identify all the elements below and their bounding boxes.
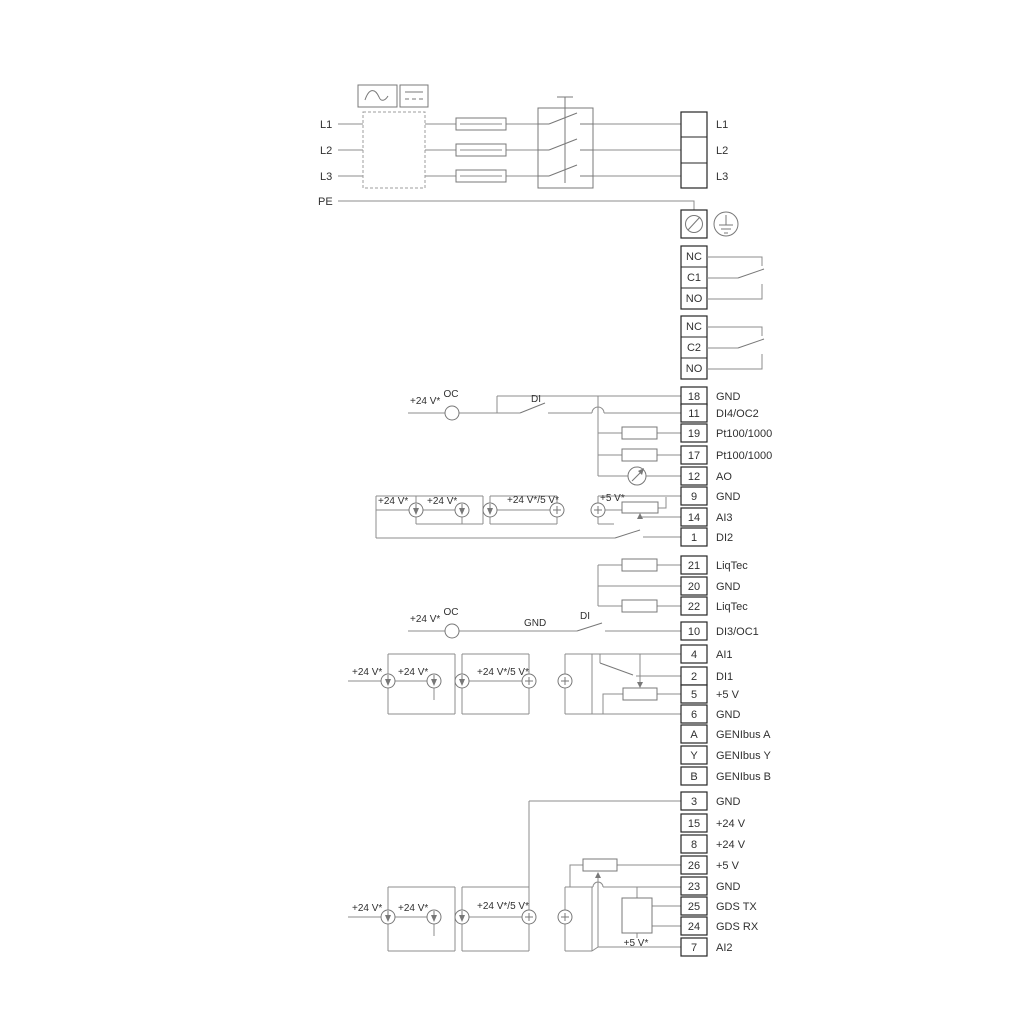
voltage-annotation: +24 V*/5 V* (477, 901, 529, 912)
liqtec-resistor-icon (622, 559, 657, 571)
voltage-annotation: +24 V* (378, 496, 408, 507)
voltage-annotation: +24 V*/5 V* (477, 667, 529, 678)
terminal-label: GND (716, 881, 741, 893)
terminal-row: 17Pt100/1000 (681, 446, 772, 464)
voltage-source-icon (558, 674, 572, 688)
terminal-label: AI3 (716, 512, 733, 524)
oc-annotation: OC (444, 389, 459, 400)
gnd-annotation: GND (524, 618, 546, 629)
di-switch-icon (615, 530, 640, 538)
terminal-row: 3GND (681, 792, 741, 810)
power-input-section: L1 L2 L3 PE L1 L2 L3 (318, 85, 738, 238)
wiring-diagram: L1 L2 L3 PE L1 L2 L3 (0, 0, 1024, 1024)
terminal-label: GENIbus Y (716, 750, 771, 762)
terminal-row: 6GND (681, 705, 741, 723)
liqtec-wiring (598, 559, 681, 612)
current-source-icon (455, 910, 469, 924)
terminal-number: 21 (688, 560, 700, 572)
terminal-number: Y (690, 750, 698, 762)
terminal-row: 14AI3 (681, 508, 733, 526)
terminal-label: GND (716, 491, 741, 503)
terminal-number: B (690, 771, 697, 783)
io-bottom-terminal-block: 3GND 15+24 V 8+24 V 26+5 V 23GND 25GDS T… (681, 792, 759, 956)
terminal-row: 18GND (681, 387, 741, 405)
current-source-icon (409, 503, 423, 517)
mains-terminal-block: L1 L2 L3 (681, 112, 728, 188)
voltage-annotation: +5 V* (600, 493, 625, 504)
terminal-label: GND (716, 391, 741, 403)
oc-annotation: OC (444, 607, 459, 618)
relay-2-wires (707, 327, 762, 369)
terminal-row: 15+24 V (681, 814, 746, 832)
potentiometer-icon (583, 859, 617, 871)
potentiometer-icon (622, 502, 658, 513)
terminal-label: Pt100/1000 (716, 428, 772, 440)
potentiometer-wiper-arrow (637, 682, 643, 688)
current-source-icon (381, 674, 395, 688)
terminal-label: DI3/OC1 (716, 626, 759, 638)
voltage-annotation: +24 V* (427, 496, 457, 507)
terminal-row: 12AO (681, 467, 732, 485)
terminal-label: LiqTec (716, 560, 748, 572)
terminal-row: 19Pt100/1000 (681, 424, 772, 442)
voltage-annotation: +24 V* (410, 396, 440, 407)
current-source-icon (381, 910, 395, 924)
voltage-annotation: +24 V* (398, 667, 428, 678)
terminal-row: 10DI3/OC1 (681, 622, 759, 640)
terminal-number: 10 (688, 626, 700, 638)
voltage-source-icon (522, 910, 536, 924)
terminal-row: 25GDS TX (681, 897, 757, 915)
terminal-label: LiqTec (716, 601, 748, 613)
terminal-row: AGENIbus A (681, 725, 771, 743)
terminal-number: 11 (688, 408, 699, 420)
potentiometer-wiper-arrow (595, 872, 601, 878)
terminal-row: 2DI1 (681, 667, 733, 685)
terminal-number: A (690, 729, 698, 741)
terminal-row: 7AI2 (681, 938, 733, 956)
fuse-wires (460, 124, 502, 176)
voltage-annotation: +24 V* (352, 903, 382, 914)
terminal-number: 24 (688, 921, 700, 933)
terminal-row: 22LiqTec (681, 597, 748, 615)
io-top-terminal-block: 18GND 11DI4/OC2 19Pt100/1000 17Pt100/100… (681, 387, 772, 546)
terminal-label: GND (716, 581, 741, 593)
terminal-number: 15 (688, 818, 700, 830)
terminal-label: +24 V (716, 818, 746, 830)
ai1-wiring-cluster: +24 V* +24 V* +24 V*/5 V* (348, 654, 681, 714)
voltage-source-icon (591, 503, 605, 517)
current-source-icon (427, 910, 441, 924)
terminal-row: BGENIbus B (681, 767, 771, 785)
voltage-annotation: +24 V* (352, 667, 382, 678)
line-label-l2: L2 (320, 145, 332, 157)
ai2-wiring-cluster: +24 V* +24 V* +24 V*/5 V* +5 V* (348, 801, 681, 951)
terminal-row: 4AI1 (681, 645, 733, 663)
relay-1-wires (707, 257, 762, 299)
potentiometer-icon (623, 688, 657, 700)
terminal-label: GDS RX (716, 921, 759, 933)
line-label-l3: L3 (320, 171, 332, 183)
terminal-label: GENIbus A (716, 729, 771, 741)
ai1-wires (348, 654, 681, 714)
voltage-annotation: +5 V* (624, 938, 649, 949)
line-label-pe: PE (318, 196, 333, 208)
terminal-number: 1 (691, 532, 697, 544)
relay-2-contact-blade (738, 339, 764, 348)
terminal-label: GENIbus B (716, 771, 771, 783)
relay-terminal-label: NO (686, 293, 703, 305)
terminal-number: 20 (688, 581, 700, 593)
oc-circle-icon (445, 624, 459, 638)
relay-terminal-label: NC (686, 321, 702, 333)
terminal-row: 26+5 V (681, 856, 740, 874)
terminal-number: 8 (691, 839, 697, 851)
terminal-row: 5+5 V (681, 685, 740, 703)
terminal-number: 26 (688, 860, 700, 872)
relay-terminal-label: C1 (687, 272, 701, 284)
current-source-icon (427, 674, 441, 688)
terminal-row: 1DI2 (681, 528, 733, 546)
terminal-number: 12 (688, 471, 700, 483)
terminal-number: 22 (688, 601, 700, 613)
terminal-number: 14 (688, 512, 700, 524)
terminal-number: 23 (688, 881, 700, 893)
terminal-label: DI2 (716, 532, 733, 544)
mains-terminal-box (681, 112, 707, 188)
terminal-row: 23GND (681, 877, 741, 895)
terminal-label: DI4/OC2 (716, 408, 759, 420)
terminal-label: DI1 (716, 671, 733, 683)
dc-sensitivity-icon (400, 85, 428, 107)
terminal-label: AO (716, 471, 732, 483)
voltage-annotation: +24 V* (398, 903, 428, 914)
terminal-label: GDS TX (716, 901, 757, 913)
terminal-label: +24 V (716, 839, 746, 851)
voltage-annotation: +24 V* (410, 614, 440, 625)
terminal-row: 24GDS RX (681, 917, 759, 935)
io-mid-terminal-block: 10DI3/OC1 4AI1 2DI1 5+5 V 6GND AGENIbus … (681, 622, 771, 785)
liqtec-resistor-icon (622, 600, 657, 612)
liqtec-terminal-block: 21LiqTec 20GND 22LiqTec (681, 556, 748, 615)
terminal-number: 7 (691, 942, 697, 954)
io-top-wiring: +24 V* OC DI (408, 389, 681, 485)
di-switch-icon (600, 663, 633, 675)
relay-1-contact-blade (738, 269, 764, 278)
terminal-label: L1 (716, 119, 728, 131)
terminal-label: +5 V (716, 689, 740, 701)
terminal-row: 9GND (681, 487, 741, 505)
di-annotation: DI (580, 611, 590, 622)
terminal-row: 8+24 V (681, 835, 746, 853)
terminal-row: 11DI4/OC2 (681, 404, 759, 422)
terminal-label: GND (716, 709, 741, 721)
di-switch-icon (577, 623, 602, 631)
terminal-row: 21LiqTec (681, 556, 748, 574)
pt100-resistor-icon (622, 427, 657, 439)
terminal-row: YGENIbus Y (681, 746, 771, 764)
terminal-number: 19 (688, 428, 700, 440)
ao-meter-icon (628, 467, 646, 485)
terminal-label: L3 (716, 171, 728, 183)
terminal-number: 3 (691, 796, 697, 808)
terminal-number: 6 (691, 709, 697, 721)
terminal-number: 9 (691, 491, 697, 503)
terminal-label: L2 (716, 145, 728, 157)
rcd-filter-box (363, 112, 425, 188)
relay-2-block: NC C2 NO (681, 316, 764, 379)
relay-1-block: NC C1 NO (681, 246, 764, 309)
pt100-resistor-icon (622, 449, 657, 461)
terminal-number: 4 (691, 649, 697, 661)
terminal-label: Pt100/1000 (716, 450, 772, 462)
relay-terminal-label: NO (686, 363, 703, 375)
terminal-label: +5 V (716, 860, 740, 872)
terminal-number: 25 (688, 901, 700, 913)
terminal-row: 20GND (681, 577, 741, 595)
line-label-l1: L1 (320, 119, 332, 131)
voltage-annotation: +24 V*/5 V* (507, 495, 559, 506)
oc-circle-icon (445, 406, 459, 420)
terminal-number: 17 (688, 450, 700, 462)
gds-module-box (622, 898, 652, 933)
terminal-number: 18 (688, 391, 700, 403)
mains-wires (338, 124, 694, 210)
wiring-diagram-canvas: L1 L2 L3 PE L1 L2 L3 (0, 0, 1024, 1024)
ai3-wiring-cluster: +24 V* +24 V* +24 V*/5 V* +5 V* (376, 493, 681, 538)
terminal-label: GND (716, 796, 741, 808)
di-annotation: DI (531, 394, 541, 405)
current-source-icon (455, 674, 469, 688)
terminal-label: AI1 (716, 649, 733, 661)
terminal-label: AI2 (716, 942, 733, 954)
relay-terminal-label: C2 (687, 342, 701, 354)
ac-sensitivity-icon (358, 85, 397, 107)
potentiometer-wiper-arrow (637, 513, 643, 519)
relay-terminal-label: NC (686, 251, 702, 263)
current-source-icon (483, 503, 497, 517)
voltage-source-icon (558, 910, 572, 924)
terminal-number: 5 (691, 689, 697, 701)
pe-terminal (681, 210, 738, 238)
terminal-number: 2 (691, 671, 697, 683)
main-disconnect-switch (538, 97, 593, 188)
